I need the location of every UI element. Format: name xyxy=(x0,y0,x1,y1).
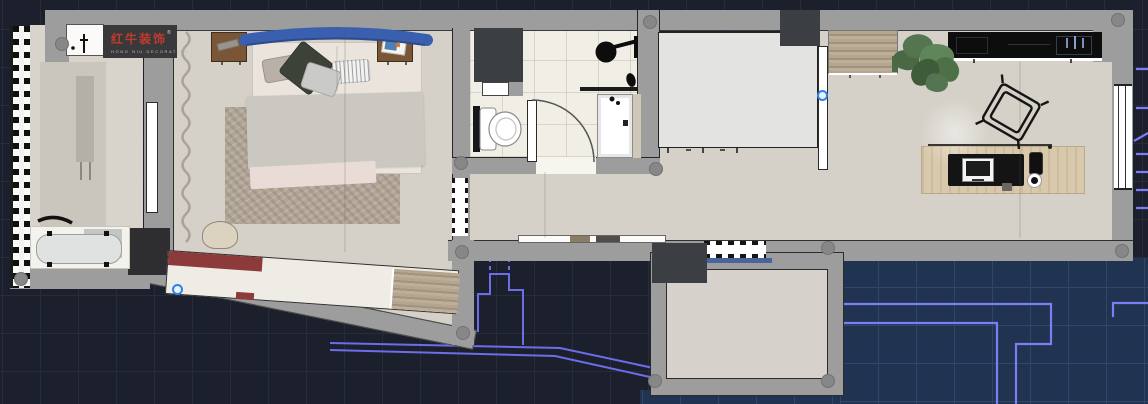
column-dot xyxy=(456,326,470,340)
platform-bed xyxy=(658,32,818,148)
column-dot xyxy=(821,241,835,255)
balcony-sliding-door xyxy=(146,102,158,213)
shoe-cabinet-item-2 xyxy=(596,236,620,242)
shower-tray xyxy=(597,94,633,158)
right-window xyxy=(1114,84,1132,190)
washing-machine xyxy=(66,24,104,56)
mid-floor xyxy=(655,148,822,240)
bathtub xyxy=(36,234,122,264)
bathroom-door-opening xyxy=(536,157,596,174)
logo-text-group: 红牛装饰® HONG NIU DECORATION xyxy=(111,30,189,54)
sink-side xyxy=(509,82,523,96)
open-door-leaf xyxy=(818,46,828,170)
column-dot xyxy=(648,374,662,388)
shoe-cabinet xyxy=(518,235,666,243)
hallway-floor xyxy=(467,172,660,240)
monitor-stand xyxy=(972,179,984,181)
faucet-mark xyxy=(1066,38,1068,48)
lower-room-dark-block xyxy=(652,243,707,283)
cad-viewport: 红牛装饰® HONG NIU DECORATION xyxy=(0,0,1148,404)
tub-foot xyxy=(47,231,52,236)
desk-badge xyxy=(1002,183,1012,191)
magazine-photo-accent xyxy=(396,43,401,48)
tub-foot xyxy=(104,231,109,236)
shower-cabinet-block xyxy=(474,28,523,82)
column-dot xyxy=(643,15,657,29)
faucet-mark-3 xyxy=(1082,38,1084,48)
wardrobe-wood-end xyxy=(389,269,460,314)
lower-room-floor xyxy=(666,269,828,379)
bathroom-door-leaf xyxy=(527,100,537,162)
column-dot xyxy=(1115,244,1129,258)
potted-plant xyxy=(888,32,958,94)
logo-tagline: HONG NIU DECORATION xyxy=(111,49,189,54)
column-dot xyxy=(454,156,468,170)
tub-foot xyxy=(104,262,109,267)
shower-glass-partition xyxy=(580,87,638,91)
column-dot xyxy=(455,245,469,259)
cad-grip-point[interactable] xyxy=(817,90,828,101)
bedroom-hall-dashed-opening xyxy=(452,178,468,236)
monitor-screen xyxy=(966,161,990,176)
shower-bench xyxy=(633,94,641,158)
cad-grip-point[interactable] xyxy=(172,284,183,295)
platform-dark-block xyxy=(780,10,820,46)
column-dot xyxy=(821,374,835,388)
accent-chair xyxy=(202,221,238,249)
cooktop xyxy=(956,37,988,54)
column-dot xyxy=(649,162,663,176)
counter-seam xyxy=(1008,44,1050,45)
coffee-cup-inner xyxy=(1031,177,1038,184)
drying-rack xyxy=(76,76,94,162)
lower-room-dashed-window xyxy=(704,241,766,258)
column-dot xyxy=(55,37,69,51)
column-dot xyxy=(14,272,28,286)
logo-brand-text: 红牛装饰 xyxy=(111,32,167,46)
top-wall xyxy=(45,10,1133,31)
wardrobe-red-panel-small xyxy=(236,292,254,300)
rack-leg-right xyxy=(89,162,91,180)
desk-edge-line xyxy=(928,144,1052,146)
column-dot xyxy=(1111,13,1125,27)
bathroom-sink xyxy=(482,82,509,96)
bedroom-corner-dark-block xyxy=(128,228,170,275)
kitchen-counter xyxy=(948,32,1102,61)
window-sill-blue xyxy=(706,258,772,263)
rack-leg-left xyxy=(80,162,82,180)
registered-mark: ® xyxy=(167,30,171,36)
bed-blanket xyxy=(246,92,425,171)
brand-logo-plate: 红牛装饰® HONG NIU DECORATION xyxy=(103,25,177,58)
faucet-mark-2 xyxy=(1074,36,1076,49)
shoe-cabinet-item xyxy=(570,236,590,242)
balcony-floor-shade xyxy=(40,62,106,228)
tablet xyxy=(1029,152,1043,175)
tub-foot xyxy=(47,262,52,267)
